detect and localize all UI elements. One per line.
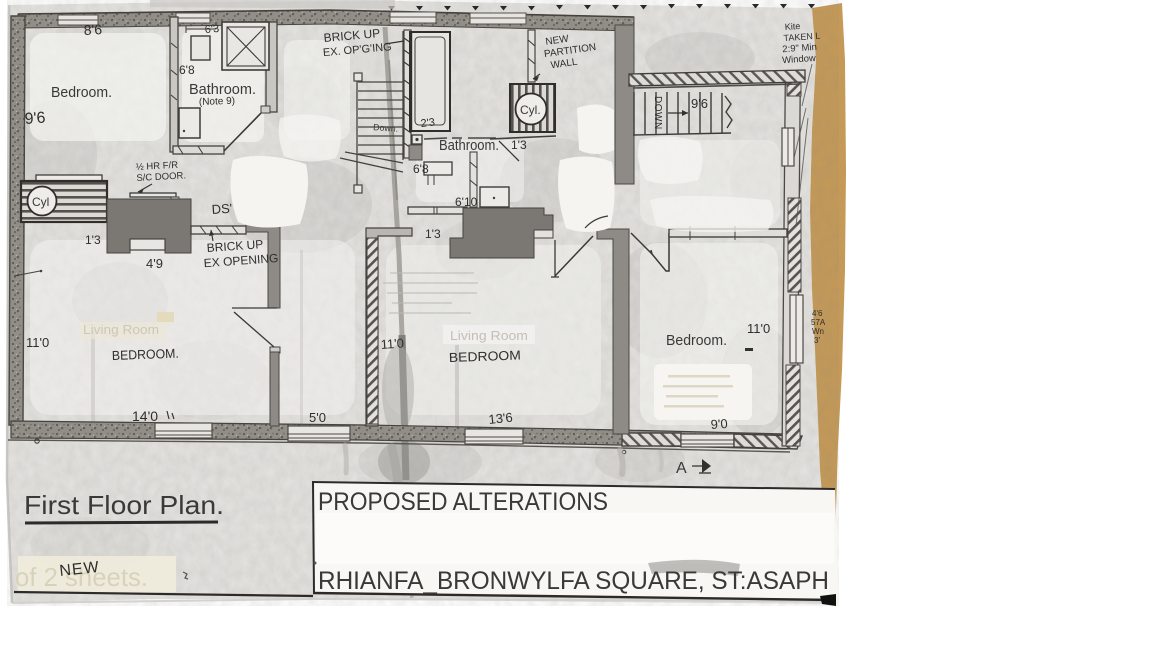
svg-text:9'6: 9'6 bbox=[691, 96, 708, 111]
svg-text:DOWN: DOWN bbox=[652, 96, 663, 130]
svg-text:6'8: 6'8 bbox=[413, 162, 429, 176]
svg-text:Living Room: Living Room bbox=[450, 329, 528, 343]
svg-text:Bedroom.: Bedroom. bbox=[666, 333, 727, 349]
svg-text:6'10: 6'10 bbox=[455, 195, 478, 209]
svg-text:Bedroom.: Bedroom. bbox=[51, 84, 112, 101]
svg-text:BEDROOM: BEDROOM bbox=[449, 347, 521, 365]
svg-text:A: A bbox=[676, 460, 687, 477]
svg-text:9'6: 9'6 bbox=[24, 110, 46, 128]
svg-text:14'0: 14'0 bbox=[132, 408, 158, 424]
svg-text:13'6: 13'6 bbox=[488, 410, 514, 427]
svg-text:6'8: 6'8 bbox=[179, 63, 195, 77]
svg-text:1'3: 1'3 bbox=[425, 227, 441, 241]
svg-text:Cyl: Cyl bbox=[32, 195, 49, 209]
svg-text:3': 3' bbox=[814, 336, 820, 345]
svg-text:5'0: 5'0 bbox=[309, 410, 326, 425]
svg-text:2'3: 2'3 bbox=[420, 117, 436, 130]
svg-text:4'6: 4'6 bbox=[812, 309, 823, 318]
svg-text:1'3: 1'3 bbox=[511, 138, 527, 152]
svg-text:Cyl.: Cyl. bbox=[520, 103, 541, 117]
svg-text:Wn: Wn bbox=[812, 327, 824, 336]
svg-text:8'6: 8'6 bbox=[83, 21, 102, 38]
svg-text:4'9: 4'9 bbox=[146, 256, 163, 271]
svg-text:(Note 9): (Note 9) bbox=[199, 96, 235, 108]
svg-text:BEDROOM.: BEDROOM. bbox=[112, 346, 179, 363]
svg-text:Living Room: Living Room bbox=[83, 323, 159, 337]
svg-text:Kite: Kite bbox=[784, 21, 800, 32]
svg-text:PROPOSED ALTERATIONS: PROPOSED ALTERATIONS bbox=[318, 488, 608, 516]
svg-text:Down.: Down. bbox=[373, 122, 399, 134]
svg-text:9'0: 9'0 bbox=[710, 416, 728, 432]
svg-text:RHIANFA_BRONWYLFA SQUARE, ST:A: RHIANFA_BRONWYLFA SQUARE, ST:ASAPH bbox=[318, 567, 829, 595]
svg-text:11'0: 11'0 bbox=[26, 335, 49, 350]
svg-text:DS': DS' bbox=[211, 201, 233, 217]
svg-text:11'0: 11'0 bbox=[380, 335, 404, 352]
svg-text:1'3: 1'3 bbox=[85, 233, 101, 247]
svg-text:First Floor Plan.: First Floor Plan. bbox=[24, 490, 224, 520]
svg-text:11'0: 11'0 bbox=[747, 321, 770, 336]
svg-text:57A: 57A bbox=[811, 318, 826, 327]
svg-text:Bathroom.: Bathroom. bbox=[439, 138, 499, 154]
svg-text:6'3: 6'3 bbox=[204, 23, 219, 36]
